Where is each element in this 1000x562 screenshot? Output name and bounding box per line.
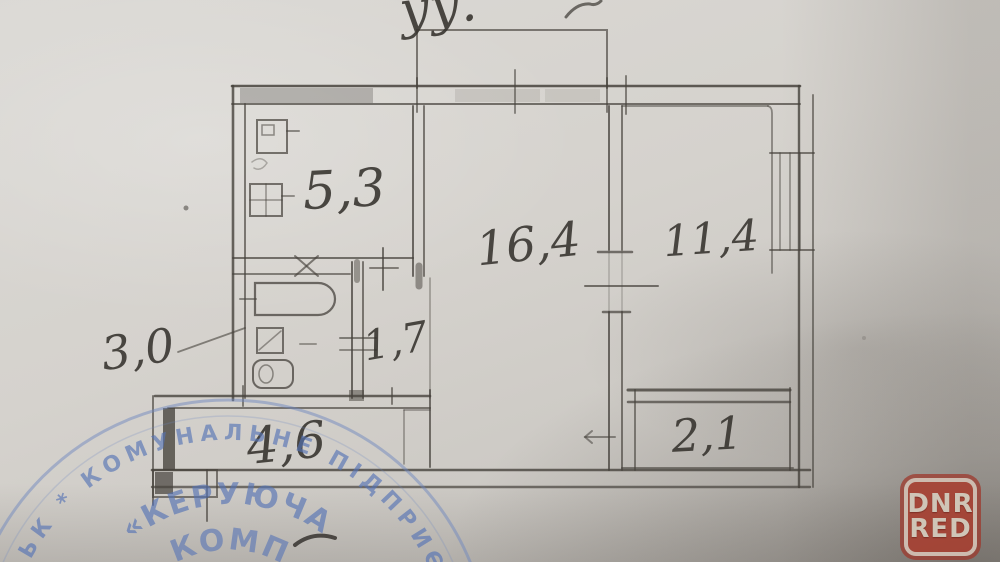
bathtub-symbol xyxy=(240,283,335,315)
handwriting-stroke xyxy=(566,1,601,17)
stamp-company-text-2: КОМП xyxy=(166,522,295,562)
stove-symbol xyxy=(257,120,299,153)
door-mark-hall xyxy=(370,248,398,290)
room-area-label-balcony: 2,1 xyxy=(669,406,744,463)
washbasin-symbol xyxy=(257,328,283,353)
room-area-label-bathroom: 3,0 xyxy=(98,317,178,381)
watermark-dnr-red: DNR RED xyxy=(904,478,977,556)
room-area-label-kitchen: 5,3 xyxy=(301,158,387,222)
pencil-smudge xyxy=(252,159,267,169)
label-leader-line xyxy=(178,328,245,352)
floor-plan-drawing: 5,3 16,4 11,4 3,0 1,7 4,6 2,1 уу. ЬК * К… xyxy=(0,0,1000,562)
floor-plan-photo: 5,3 16,4 11,4 3,0 1,7 4,6 2,1 уу. ЬК * К… xyxy=(0,0,1000,562)
watermark-line-2: RED xyxy=(909,517,971,542)
svg-text:КОМП: КОМП xyxy=(166,522,295,562)
room-area-label-hallway: 1,7 xyxy=(359,312,432,371)
room-area-label-bedroom: 11,4 xyxy=(662,211,761,268)
official-stamp: ЬК * КОМУНАЛЬНЕ ПІДПРИЄ «КЕРУЮЧА КОМП xyxy=(0,400,490,562)
window-hatch-symbol xyxy=(770,153,814,250)
room-area-label-living-room: 16,4 xyxy=(473,212,583,278)
toilet-symbol xyxy=(253,360,293,388)
handwritten-note-top: уу. xyxy=(394,0,480,42)
sink-symbol xyxy=(250,184,294,216)
door-mark-balcony xyxy=(585,431,615,443)
